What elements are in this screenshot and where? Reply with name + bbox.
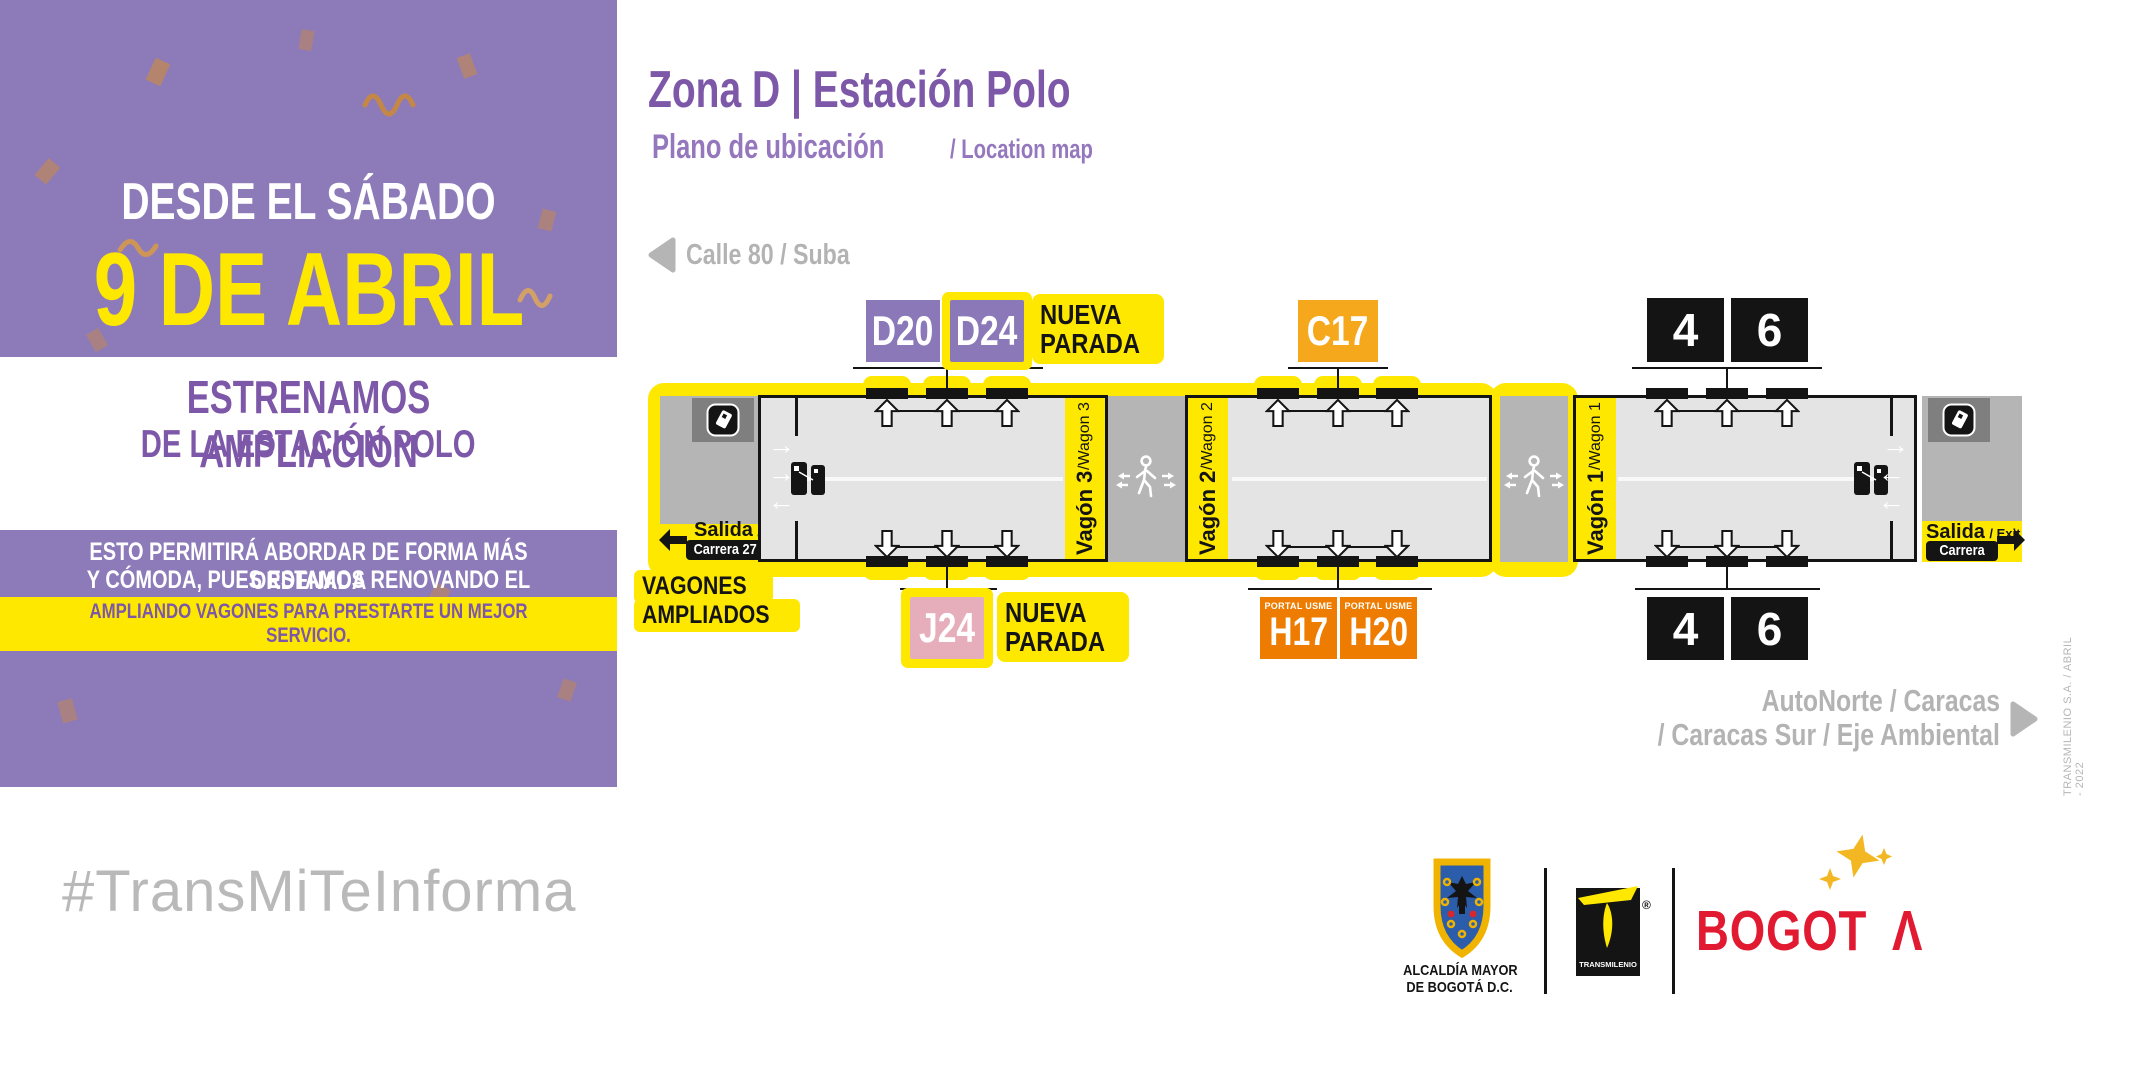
band-line2: DE LA ESTACIÓN POLO [0,423,617,467]
exit-arrow-left-icon [658,528,688,552]
badge-stem [1726,367,1728,390]
vestibule-line [795,398,798,436]
page-title: Zona D | Estación Polo [648,60,1212,120]
west-arrow-icon [645,236,677,274]
wagon-1-name: Vagón 1 [1583,470,1609,554]
stop-badge-C17: C17 [1298,300,1378,362]
badge-stem [1337,562,1339,588]
door-arrow-down-icon [994,530,1020,558]
door [866,388,908,399]
subtitle-es: Plano de ubicación [652,128,884,167]
badge-stem [946,562,948,588]
badge-stem [946,367,948,390]
vestibule-line [1890,521,1893,559]
stop-badge-4-top: 4 [1647,298,1724,362]
door-arrow-down-icon [874,530,900,558]
badge-line [900,588,997,590]
note-vagones-ampliados: VAGONES AMPLIADOS [634,570,800,632]
page-subtitle: Plano de ubicación / Location map [652,128,1141,167]
door [986,388,1028,399]
footer-divider [1544,868,1547,994]
stop-badge-H20: PORTAL USME H20 [1340,597,1417,659]
poster: DESDE EL SÁBADO 9 DE ABRIL ESTRENAMOS AM… [0,0,2134,1067]
door-arrow-up-icon [1384,399,1410,427]
flow-arrow-left: ← [1878,488,1905,515]
door [1646,388,1688,399]
credit-line: TRANSMILENIO S.A. / ABRIL - 2022 [2062,636,2086,796]
wagon-2-label-band: Vagón 2 /Wagon 2 [1188,398,1228,559]
door-arrow-down-icon [1325,530,1351,558]
flow-arrow-right: → [768,432,795,459]
subtitle-en: / Location map [950,134,1093,165]
transmilenio-logo-text: TRANSMILENIO [1579,960,1637,969]
bogota-stars-icon [1818,834,1898,906]
flow-arrow-right: → [1882,432,1909,459]
fare-gate-icon [1942,403,1976,437]
platform-center-line [1618,477,1886,481]
door-arrow-up-icon [1714,399,1740,427]
direction-west: Calle 80 / Suba [686,239,891,272]
door-arrow-up-icon [1265,399,1291,427]
stop-badge-J24-new: J24 [910,597,984,659]
stop-badge-H17: PORTAL USME H17 [1260,597,1337,659]
stop-badge-D24-new: D24 [950,300,1024,362]
highlight-strip: AMPLIANDO VAGONES PARA PRESTARTE UN MEJO… [0,597,617,651]
door-arrow-down-icon [1714,530,1740,558]
direction-east: AutoNorte / Caracas / Caracas Sur / Eje … [1572,684,2000,752]
exit-arrow-right-icon [1996,528,2026,552]
exit-east-street: Carrera 28 [1926,541,1998,561]
headline-date-text: 9 DE ABRIL [93,238,523,342]
badge-line [1248,588,1432,590]
alcaldia-caption: ALCALDÍA MAYOR DE BOGOTÁ D.C. [1385,962,1535,996]
ticket-machine-icon [789,460,829,498]
white-band: ESTRENAMOS AMPLIACIÓN DE LA ESTACIÓN POL… [0,357,617,530]
new-stop-label-bottom: NUEVA PARADA [997,592,1129,662]
badge-stem [1337,367,1339,390]
door-arrow-down-icon [1384,530,1410,558]
stop-badge-4-bottom: 4 [1647,597,1724,660]
headline-date-intro: DESDE EL SÁBADO [0,172,617,232]
flow-arrow-left: ← [1878,460,1905,487]
wagon-2-name: Vagón 2 [1195,470,1221,554]
exit-west-street: Carrera 27 [686,540,764,560]
door-arrow-down-icon [1654,530,1680,558]
stop-badge-D20: D20 [866,300,940,362]
wagon-1-label-band: Vagón 1 /Wagon 1 [1576,398,1616,559]
footer-divider [1672,868,1675,994]
vestibule-line [795,521,798,559]
pedestrian-crossing-icon [1114,452,1178,508]
bogota-lambda: Λ [1892,898,1923,964]
alcaldia-shield-logo [1433,858,1491,958]
new-stop-label-top: NUEVA PARADA [1032,294,1164,364]
bogota-logo: BOGOTΛ [1696,898,1931,964]
pedestrian-crossing-icon [1502,452,1566,508]
platform-center-line [800,477,1063,481]
door [1257,388,1299,399]
wagon-3-name: Vagón 3 [1072,470,1098,554]
announcement-panel: DESDE EL SÁBADO 9 DE ABRIL ESTRENAMOS AM… [0,0,617,787]
transmilenio-logo: TRANSMILENIO [1576,884,1640,976]
platform-center-line [1232,477,1487,481]
door-arrow-up-icon [1654,399,1680,427]
door-arrow-up-icon [994,399,1020,427]
door-arrow-up-icon [1774,399,1800,427]
wagon-1-alt: /Wagon 1 [1587,402,1605,470]
stop-badge-6-bottom: 6 [1731,597,1808,660]
door [1766,388,1808,399]
badge-line [1635,588,1820,590]
headline-date: 9 DE ABRIL [0,238,617,342]
badge-stem [1726,562,1728,588]
flow-arrow-right: → [768,460,795,487]
door [1376,388,1418,399]
door-arrow-up-icon [1325,399,1351,427]
door-arrow-down-icon [1774,530,1800,558]
door-arrow-down-icon [1265,530,1291,558]
door-arrow-down-icon [934,530,960,558]
flow-arrow-left: ← [768,488,795,515]
wagon-2-alt: /Wagon 2 [1199,402,1217,470]
headline-text: DESDE EL SÁBADO [121,172,495,232]
svg-text:TRANSMILENIO: TRANSMILENIO [1579,960,1637,969]
badge-line [853,367,1043,369]
highlight-text: AMPLIANDO VAGONES PARA PRESTARTE UN MEJO… [68,600,549,648]
fare-gate-icon [706,403,740,437]
door-arrow-up-icon [934,399,960,427]
door-arrow-up-icon [874,399,900,427]
east-arrow-icon [2008,700,2042,738]
wagon-3-alt: /Wagon 3 [1076,402,1094,470]
stop-badge-6-top: 6 [1731,298,1808,362]
registered-mark: ® [1642,898,1651,912]
wagon-3-label-band: Vagón 3 /Wagon 3 [1065,398,1105,559]
hashtag: #TransMiTeInforma [62,858,576,925]
